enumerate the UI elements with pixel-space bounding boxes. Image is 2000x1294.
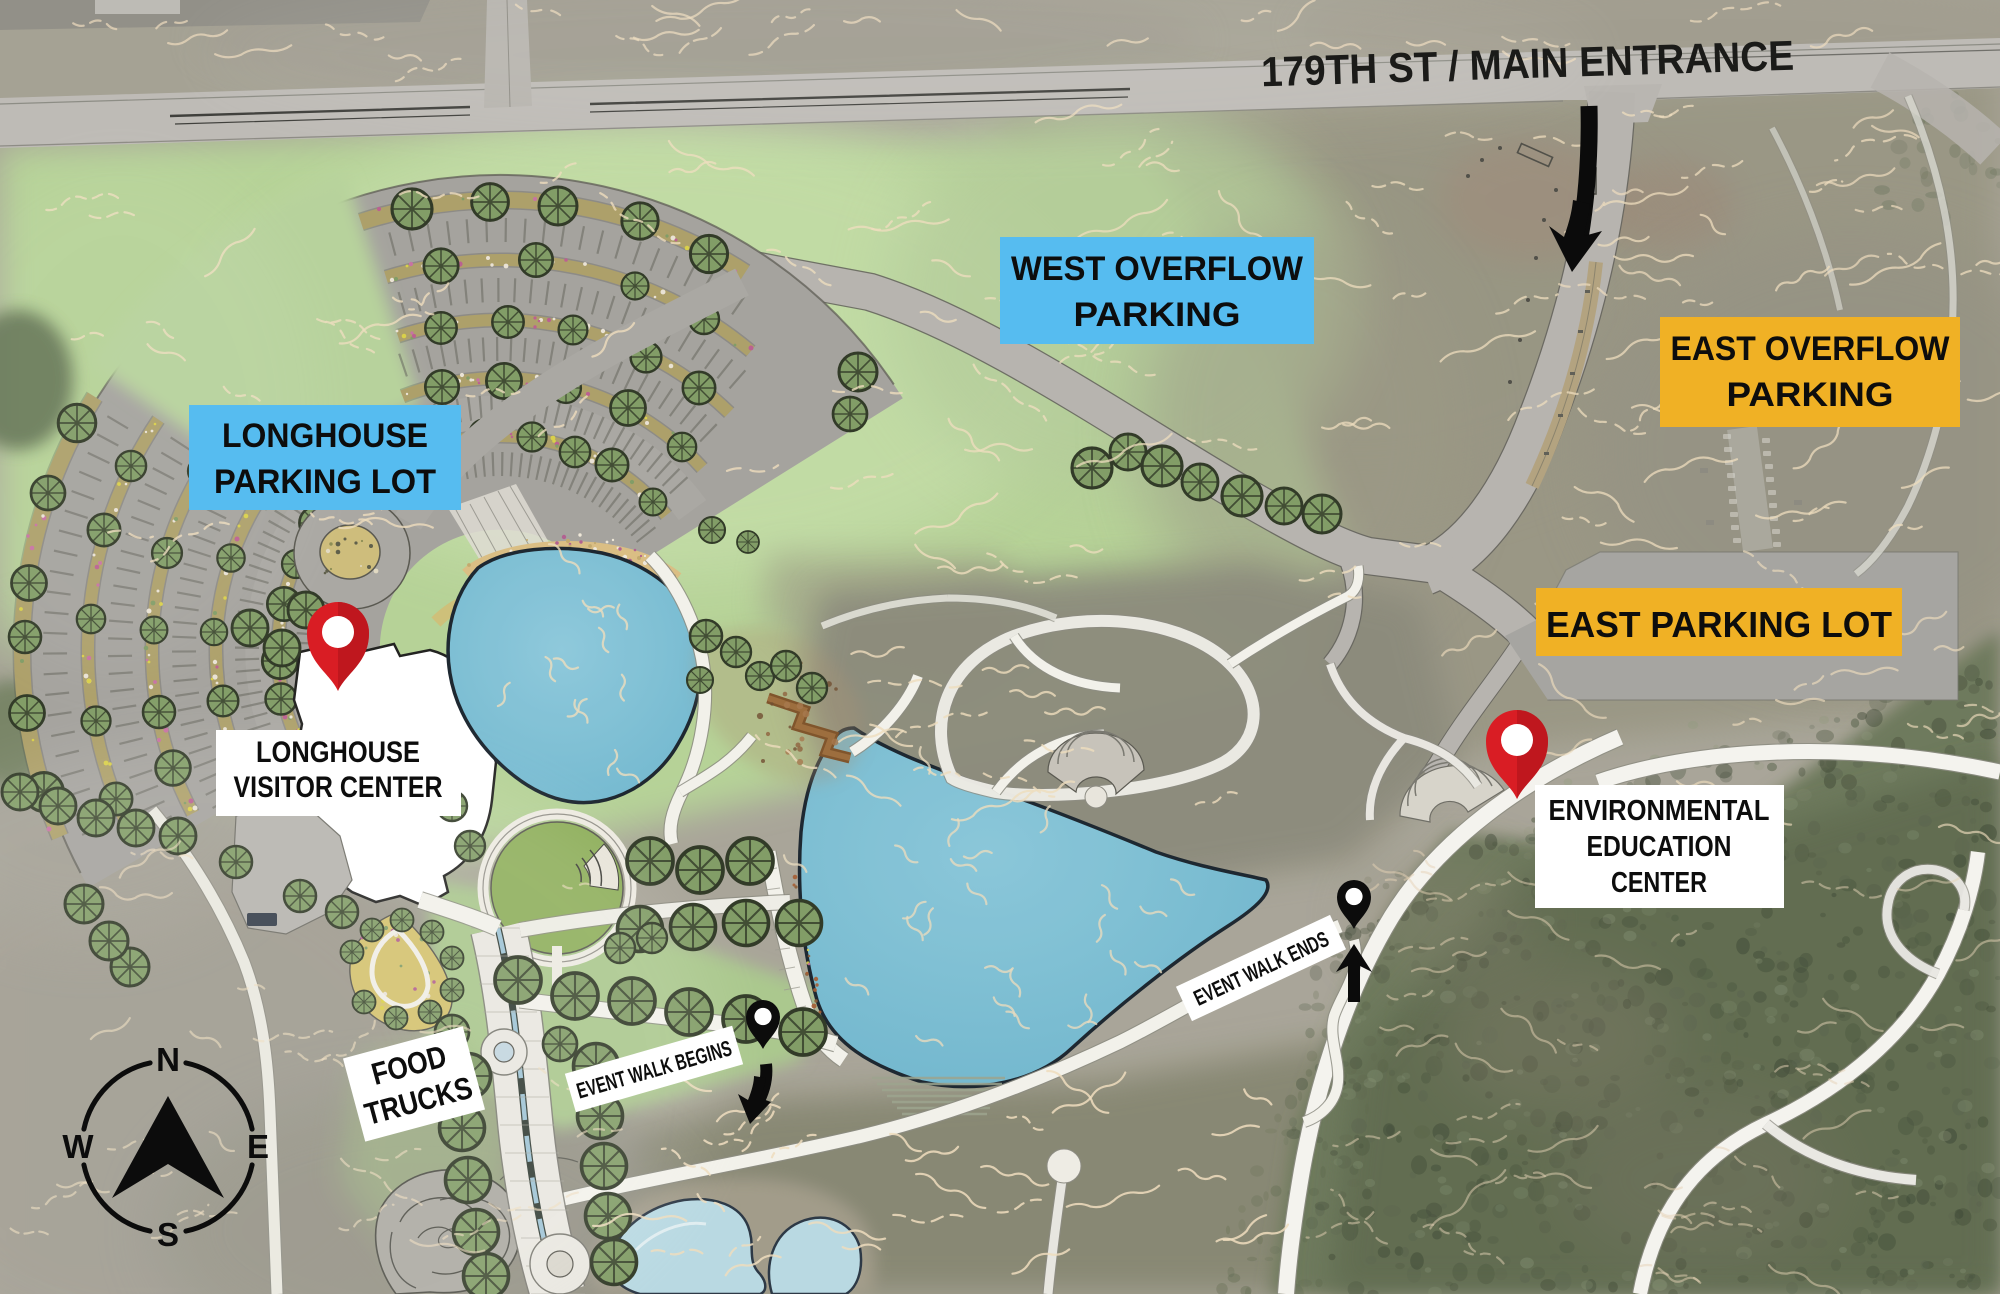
svg-text:LONGHOUSE: LONGHOUSE <box>222 417 428 455</box>
svg-text:PARKING: PARKING <box>1074 296 1241 334</box>
svg-text:W: W <box>62 1128 94 1165</box>
svg-text:EDUCATION: EDUCATION <box>1587 831 1732 863</box>
svg-text:ENVIRONMENTAL: ENVIRONMENTAL <box>1549 795 1770 827</box>
svg-text:PARKING: PARKING <box>1727 376 1894 414</box>
svg-text:EAST OVERFLOW: EAST OVERFLOW <box>1671 330 1951 368</box>
svg-text:EAST PARKING LOT: EAST PARKING LOT <box>1546 604 1892 645</box>
svg-text:VISITOR CENTER: VISITOR CENTER <box>234 771 443 804</box>
svg-text:LONGHOUSE: LONGHOUSE <box>256 736 420 769</box>
svg-text:WEST OVERFLOW: WEST OVERFLOW <box>1011 250 1304 288</box>
svg-text:E: E <box>247 1128 269 1165</box>
svg-text:S: S <box>157 1216 179 1253</box>
svg-text:PARKING LOT: PARKING LOT <box>214 463 436 501</box>
svg-text:CENTER: CENTER <box>1611 867 1707 899</box>
svg-text:N: N <box>156 1041 180 1078</box>
